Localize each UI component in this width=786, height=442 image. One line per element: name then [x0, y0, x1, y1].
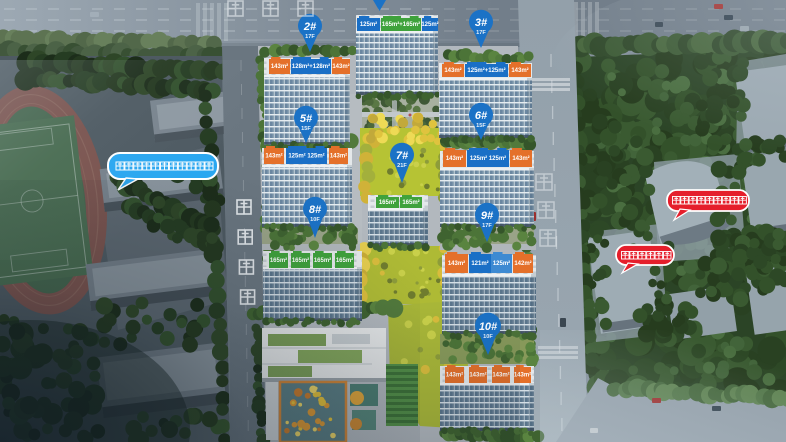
- svg-text:17F: 17F: [476, 30, 486, 36]
- svg-text:125m²: 125m²: [421, 21, 438, 28]
- svg-text:6#: 6#: [475, 110, 488, 122]
- svg-text:143m²: 143m²: [448, 260, 465, 267]
- svg-text:125m² 125m²: 125m² 125m²: [288, 153, 324, 160]
- svg-text:121m²: 121m²: [471, 260, 488, 267]
- svg-text:143m²: 143m²: [271, 63, 288, 70]
- svg-text:15F: 15F: [301, 126, 311, 132]
- svg-text:143m²: 143m²: [330, 153, 347, 160]
- svg-text:143m²: 143m²: [332, 63, 349, 70]
- svg-text:165m²+165m²: 165m²+165m²: [382, 21, 420, 28]
- svg-text:21F: 21F: [397, 163, 407, 169]
- svg-text:3#: 3#: [475, 17, 488, 29]
- svg-text:17F: 17F: [305, 34, 315, 40]
- svg-text:2#: 2#: [303, 21, 317, 33]
- svg-text:143m²: 143m²: [446, 155, 463, 162]
- svg-text:143m²: 143m²: [511, 67, 528, 74]
- svg-text:7#: 7#: [396, 150, 409, 162]
- svg-text:17F: 17F: [482, 223, 492, 229]
- svg-text:15F: 15F: [476, 123, 486, 129]
- svg-text:128m²+128m²: 128m²+128m²: [292, 63, 330, 70]
- svg-text:9#: 9#: [481, 210, 494, 222]
- svg-text:125m² 125m²: 125m² 125m²: [470, 155, 506, 162]
- svg-text:143m²: 143m²: [265, 153, 282, 160]
- svg-text:125m²: 125m²: [360, 21, 377, 28]
- svg-text:125m²: 125m²: [493, 260, 510, 267]
- svg-text:125m²+125m²: 125m²+125m²: [467, 67, 505, 74]
- svg-text:5#: 5#: [300, 113, 313, 125]
- svg-text:142m²: 142m²: [514, 260, 531, 267]
- svg-text:143m²: 143m²: [444, 67, 461, 74]
- svg-text:143m²: 143m²: [512, 155, 529, 162]
